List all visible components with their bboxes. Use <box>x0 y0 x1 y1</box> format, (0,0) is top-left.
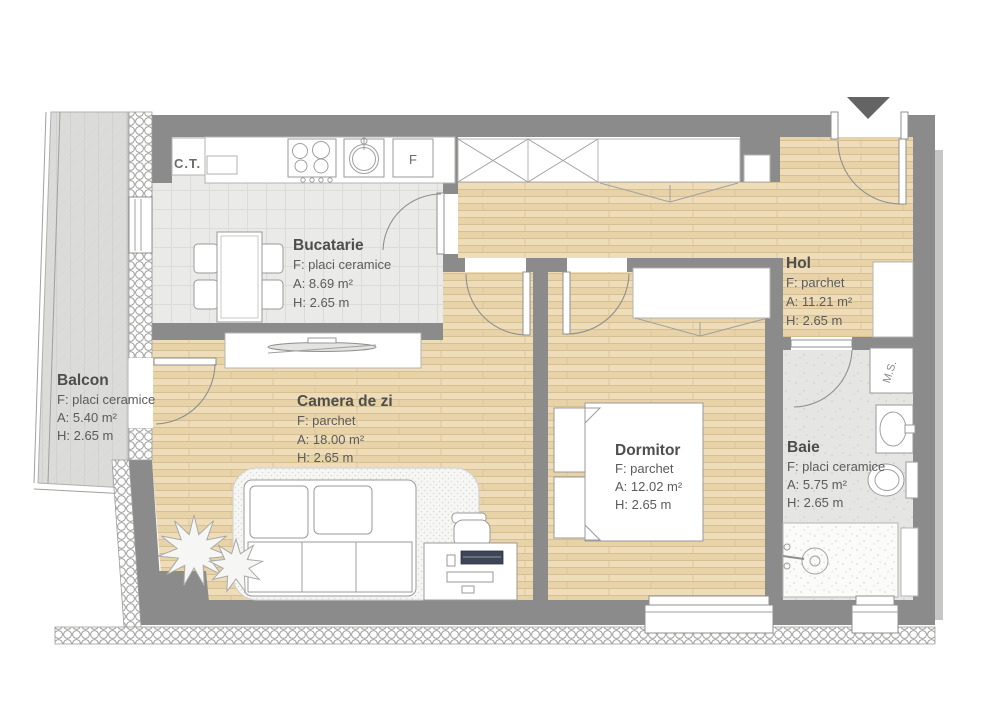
wall-right-outer-edge <box>935 150 943 620</box>
door-jamb <box>831 112 838 139</box>
hol-height-label: H: 2.65 m <box>786 313 842 328</box>
chair <box>194 244 218 273</box>
wall-bottom <box>140 600 935 625</box>
baie-height-label: H: 2.65 m <box>787 495 843 510</box>
balcon-floor-label: F: placi ceramice <box>57 392 155 407</box>
fridge-label: F <box>409 152 417 167</box>
chair <box>194 280 218 309</box>
bucatarie-floor-label: F: placi ceramice <box>293 257 391 272</box>
dining-table <box>217 232 262 322</box>
door-leaf <box>791 340 852 347</box>
bedroom-window <box>645 596 773 633</box>
wall-bedroom-top-stub <box>548 258 567 272</box>
kitchen-balcony-window <box>129 197 152 253</box>
dormitor-floor-label: F: parchet <box>615 461 674 476</box>
baie-floor-label: F: placi ceramice <box>787 459 885 474</box>
kitchen-sink <box>344 137 384 177</box>
keyboard <box>447 572 493 582</box>
bath-sink <box>876 405 915 453</box>
door-leaf <box>154 358 216 365</box>
bath-niche <box>901 528 918 596</box>
wall-living-bedroom <box>533 258 548 600</box>
door-leaf <box>563 272 570 334</box>
sofa-cushion <box>314 486 372 534</box>
hatch-balcony-wall-bottom <box>129 428 152 460</box>
entrance-arrow-icon <box>847 97 890 119</box>
sofa-cushion <box>250 486 308 538</box>
camera-de-zi-height-label: H: 2.65 m <box>297 450 353 465</box>
shower <box>783 523 898 597</box>
chair <box>259 244 283 273</box>
balcon-area-label: A: 5.40 m² <box>57 410 118 425</box>
baie-title: Baie <box>787 439 820 456</box>
floor-plan-page: Bucatarie F: placi ceramice A: 8.69 m² H… <box>0 0 994 720</box>
window-sill <box>856 596 894 605</box>
window-frame <box>852 605 898 633</box>
baie-area-label: A: 5.75 m² <box>787 477 848 492</box>
balcon-title: Balcon <box>57 372 109 389</box>
hol-floor-label: F: parchet <box>786 275 845 290</box>
hatch-bottom-exterior <box>55 627 935 644</box>
door-jamb <box>901 112 908 139</box>
window-frame <box>645 605 773 633</box>
sofa <box>244 480 416 596</box>
dormitor-area-label: A: 12.02 m² <box>615 479 683 494</box>
wall-hall-living-left <box>443 258 465 272</box>
hall-closet <box>598 139 740 182</box>
wall-top-left <box>140 115 838 137</box>
hatch-balcony-wall-mid <box>129 253 152 358</box>
wall-top-right <box>908 115 935 137</box>
counter-cabinet <box>207 156 237 174</box>
wall-bath-top-left <box>783 337 791 350</box>
bucatarie-title: Bucatarie <box>293 237 364 254</box>
bathroom-window <box>852 596 898 633</box>
bucatarie-height-label: H: 2.65 m <box>293 295 349 310</box>
nightstand <box>554 477 587 538</box>
nightstand <box>554 408 587 472</box>
bucatarie-area-label: A: 8.69 m² <box>293 276 354 291</box>
hol-area-label: A: 11.21 m² <box>786 294 853 309</box>
camera-de-zi-area-label: A: 18.00 m² <box>297 432 365 447</box>
chair <box>259 280 283 309</box>
camera-de-zi-floor-label: F: parchet <box>297 413 356 428</box>
wall-niche <box>744 155 770 182</box>
door-leaf <box>899 139 906 204</box>
bedroom-wardrobe <box>633 268 770 318</box>
hall-niche <box>873 262 913 337</box>
camera-de-zi-title: Camera de zi <box>297 393 393 410</box>
desk-item <box>447 555 455 566</box>
door-leaf <box>523 272 530 335</box>
hol-title: Hol <box>786 255 811 272</box>
window-sill <box>649 596 769 605</box>
boiler-label: C.T. <box>174 156 201 171</box>
balcon-height-label: H: 2.65 m <box>57 428 113 443</box>
floor-plan-svg: Bucatarie F: placi ceramice A: 8.69 m² H… <box>0 0 994 720</box>
stove <box>288 139 336 182</box>
door-leaf <box>437 193 444 254</box>
mouse <box>462 586 474 593</box>
dormitor-height-label: H: 2.65 m <box>615 497 671 512</box>
dormitor-title: Dormitor <box>615 442 680 459</box>
hatch-balcony-wall-top <box>129 112 152 197</box>
